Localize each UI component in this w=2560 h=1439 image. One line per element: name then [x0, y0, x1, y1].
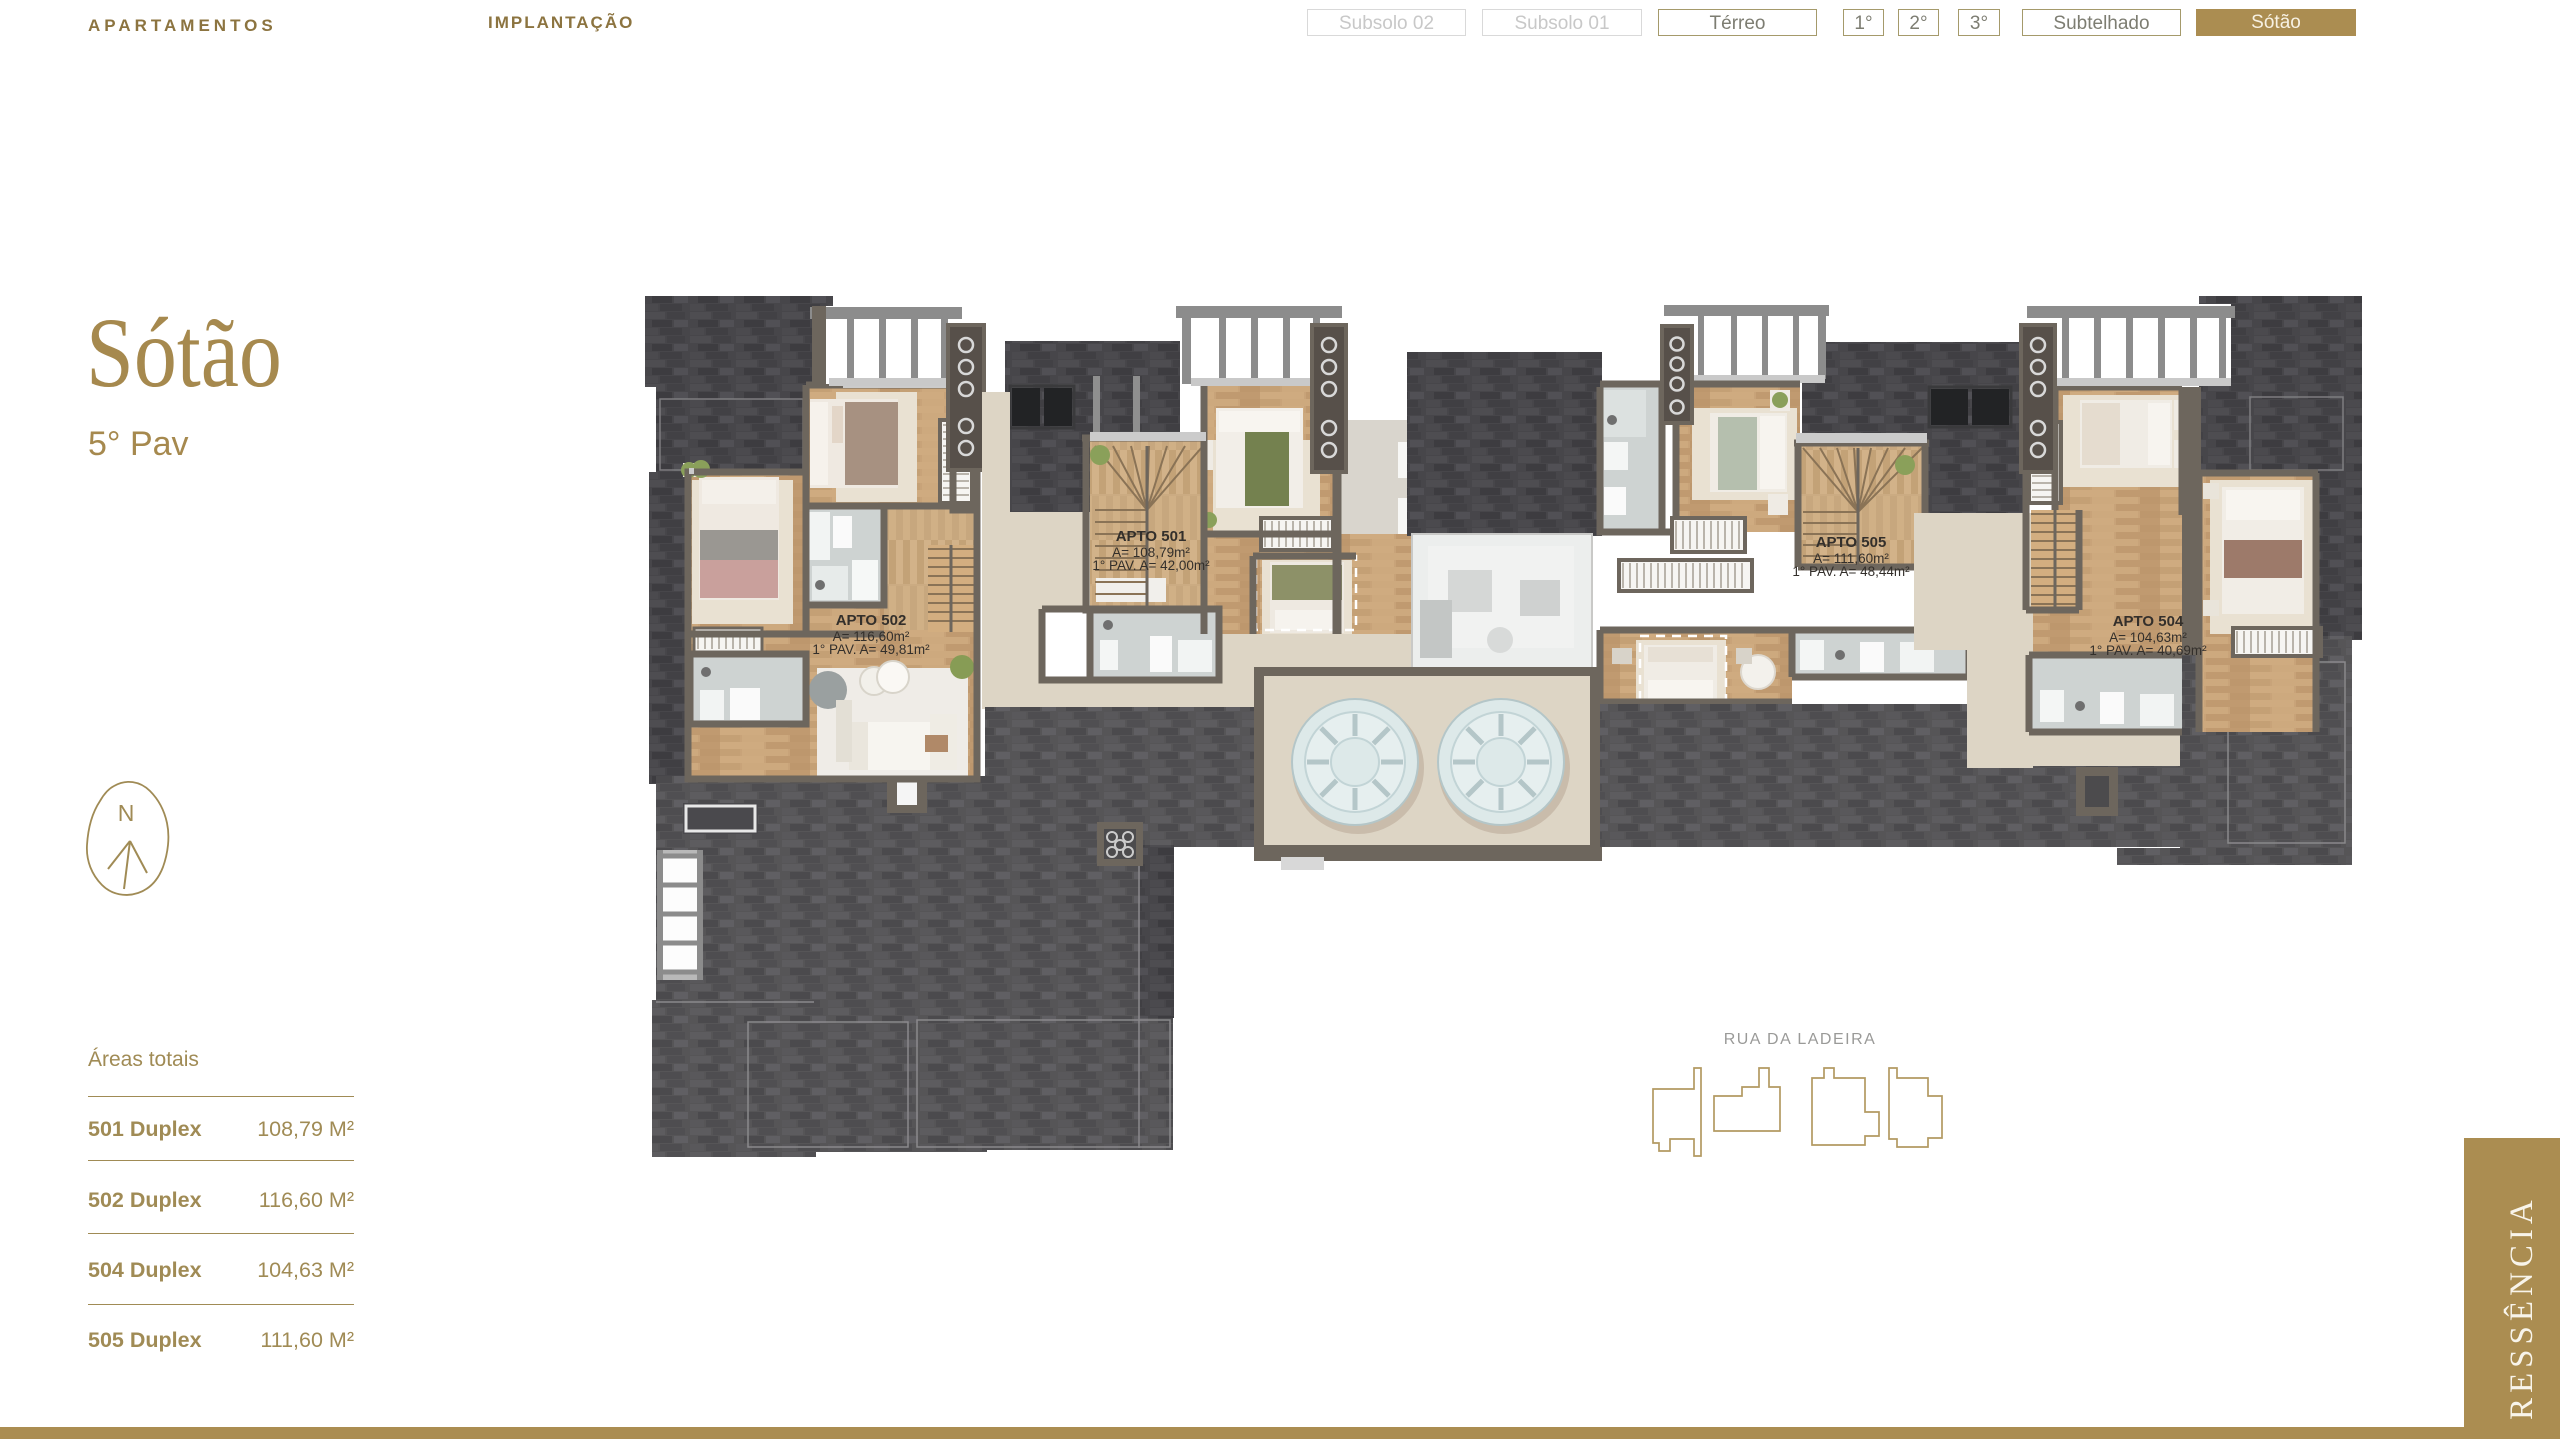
svg-text:APTO 504: APTO 504 [2113, 613, 2184, 630]
svg-text:1° PAV. A= 40,69m²: 1° PAV. A= 40,69m² [2089, 643, 2207, 658]
svg-text:1° PAV. A= 49,81m²: 1° PAV. A= 49,81m² [812, 642, 930, 657]
svg-text:APTO 505: APTO 505 [1816, 534, 1887, 551]
svg-text:1° PAV. A= 42,00m²: 1° PAV. A= 42,00m² [1092, 558, 1210, 573]
svg-text:APTO 502: APTO 502 [836, 612, 907, 629]
svg-text:N: N [118, 800, 135, 826]
svg-text:APTO 501: APTO 501 [1116, 528, 1187, 545]
svg-text:1° PAV. A= 48,44m²: 1° PAV. A= 48,44m² [1792, 564, 1910, 579]
svg-text:RESSÊNCIA: RESSÊNCIA [2503, 1195, 2540, 1420]
